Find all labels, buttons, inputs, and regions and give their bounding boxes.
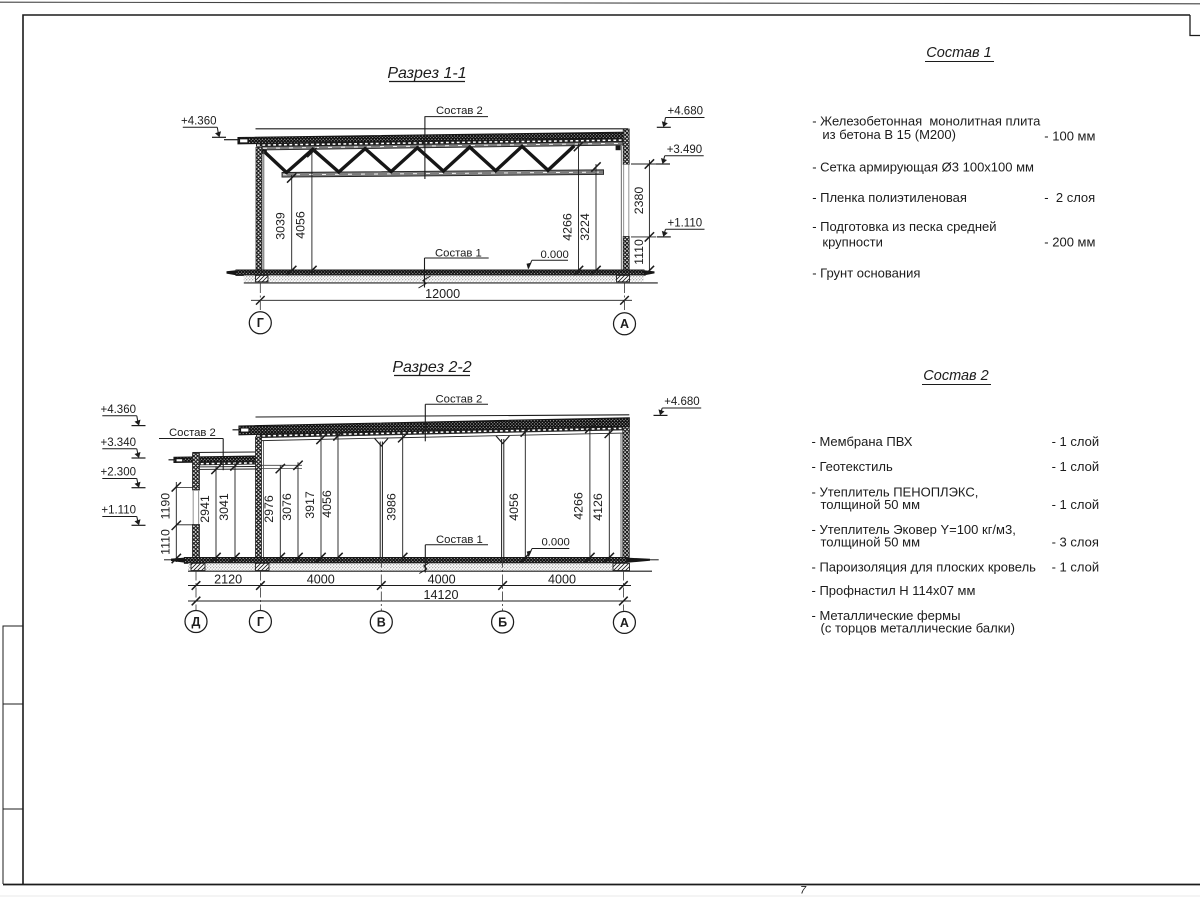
svg-text:Состав 2: Состав 2 <box>923 368 988 384</box>
svg-text:3224: 3224 <box>578 213 592 241</box>
svg-text:- 2 слоя: - 2 слоя <box>1044 190 1095 205</box>
svg-text:- Подготовка из песка средней: - Подготовка из песка средней <box>812 219 996 234</box>
svg-text:(с торцов металлические балки): (с торцов металлические балки) <box>821 620 1016 635</box>
svg-text:3039: 3039 <box>274 212 288 240</box>
svg-text:- Пленка полиэтиленовая: - Пленка полиэтиленовая <box>812 190 967 205</box>
svg-text:+4.680: +4.680 <box>664 396 700 408</box>
svg-text:- Сетка армирующая Ø3 100х100: - Сетка армирующая Ø3 100х100 мм <box>812 159 1034 174</box>
svg-text:2941: 2941 <box>198 495 212 523</box>
svg-text:+4.680: +4.680 <box>668 106 704 118</box>
svg-text:3041: 3041 <box>217 493 231 521</box>
svg-text:2120: 2120 <box>214 572 242 586</box>
svg-text:- Геотекстиль: - Геотекстиль <box>812 459 893 474</box>
svg-text:- 1 слой: - 1 слой <box>1052 497 1100 512</box>
svg-text:- 1 слой: - 1 слой <box>1052 459 1100 474</box>
svg-text:Г: Г <box>257 615 264 629</box>
svg-text:+3.490: +3.490 <box>667 144 703 156</box>
svg-text:1190: 1190 <box>158 493 172 520</box>
svg-text:+4.360: +4.360 <box>181 116 217 128</box>
svg-text:1110: 1110 <box>158 529 172 555</box>
svg-text:толщиной 50 мм: толщиной 50 мм <box>821 535 921 550</box>
svg-text:Д: Д <box>192 615 201 629</box>
svg-text:- 100 мм: - 100 мм <box>1044 129 1095 144</box>
svg-text:4000: 4000 <box>548 572 576 586</box>
svg-text:Разрез 1-1: Разрез 1-1 <box>387 65 466 82</box>
svg-text:- 200 мм: - 200 мм <box>1044 235 1095 250</box>
svg-text:+2.300: +2.300 <box>101 467 137 479</box>
svg-text:+1.110: +1.110 <box>101 505 136 517</box>
svg-text:0.000: 0.000 <box>541 249 569 261</box>
svg-text:- 1 слой: - 1 слой <box>1052 434 1100 449</box>
svg-text:- Пароизоляция для плоских кро: - Пароизоляция для плоских кровель <box>812 560 1037 575</box>
svg-text:В: В <box>377 615 386 629</box>
svg-text:- 1 слой: - 1 слой <box>1052 560 1100 575</box>
svg-text:+1.110: +1.110 <box>668 218 703 230</box>
svg-text:3076: 3076 <box>280 493 294 521</box>
svg-text:4266: 4266 <box>560 213 574 241</box>
svg-text:4266: 4266 <box>572 492 586 520</box>
svg-text:0.000: 0.000 <box>542 537 570 549</box>
svg-text:4056: 4056 <box>507 493 521 521</box>
svg-text:3917: 3917 <box>303 491 317 519</box>
svg-text:Состав 2: Состав 2 <box>436 393 483 405</box>
svg-text:из бетона В 15 (М200): из бетона В 15 (М200) <box>822 127 956 142</box>
svg-text:4056: 4056 <box>320 490 334 518</box>
svg-text:4056: 4056 <box>294 211 308 239</box>
svg-text:4000: 4000 <box>307 572 335 586</box>
svg-text:Состав 2: Состав 2 <box>436 105 483 117</box>
svg-text:1110: 1110 <box>632 239 646 265</box>
svg-text:+4.360: +4.360 <box>101 404 137 416</box>
svg-text:Г: Г <box>257 316 264 330</box>
svg-text:7: 7 <box>800 885 807 897</box>
svg-text:- 3 слоя: - 3 слоя <box>1052 535 1099 550</box>
svg-text:Разрез 2-2: Разрез 2-2 <box>392 359 471 376</box>
svg-text:4126: 4126 <box>591 493 605 521</box>
svg-text:- Грунт основания: - Грунт основания <box>812 265 920 280</box>
svg-text:крупности: крупности <box>822 235 882 250</box>
svg-text:- Профнастил Н 114х07 мм: - Профнастил Н 114х07 мм <box>812 583 976 598</box>
svg-text:толщиной 50 мм: толщиной 50 мм <box>821 497 921 512</box>
svg-text:А: А <box>620 317 629 331</box>
svg-text:Б: Б <box>498 615 507 629</box>
svg-text:Состав 1: Состав 1 <box>436 534 483 546</box>
svg-text:2380: 2380 <box>632 187 646 215</box>
svg-text:- Мембрана ПВХ: - Мембрана ПВХ <box>812 434 913 449</box>
svg-text:2976: 2976 <box>262 495 276 523</box>
svg-text:14120: 14120 <box>423 588 458 602</box>
svg-text:Состав 1: Состав 1 <box>926 45 991 61</box>
svg-text:3986: 3986 <box>385 493 399 521</box>
svg-text:Состав 2: Состав 2 <box>169 427 216 439</box>
svg-text:12000: 12000 <box>425 287 460 301</box>
svg-text:+3.340: +3.340 <box>101 437 137 449</box>
svg-text:4000: 4000 <box>428 572 456 586</box>
svg-text:А: А <box>620 616 629 630</box>
